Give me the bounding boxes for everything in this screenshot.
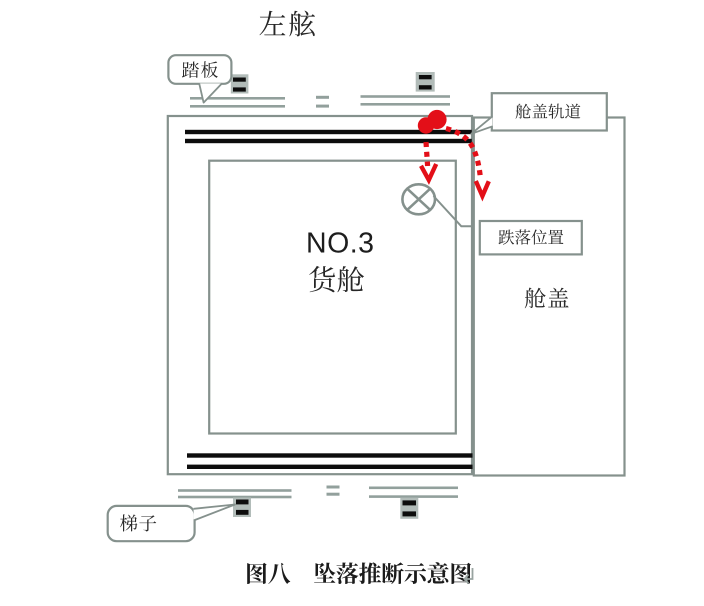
svg-text:NO.3: NO.3 <box>306 228 375 260</box>
